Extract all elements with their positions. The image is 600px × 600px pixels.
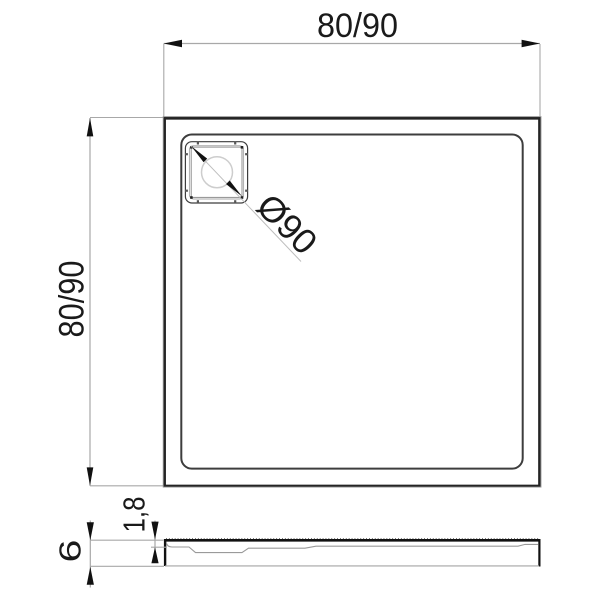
svg-text:80/90: 80/90 [317,7,398,45]
svg-text:6: 6 [52,540,87,563]
svg-text:80/90: 80/90 [53,261,92,338]
svg-text:1,8: 1,8 [117,497,152,533]
